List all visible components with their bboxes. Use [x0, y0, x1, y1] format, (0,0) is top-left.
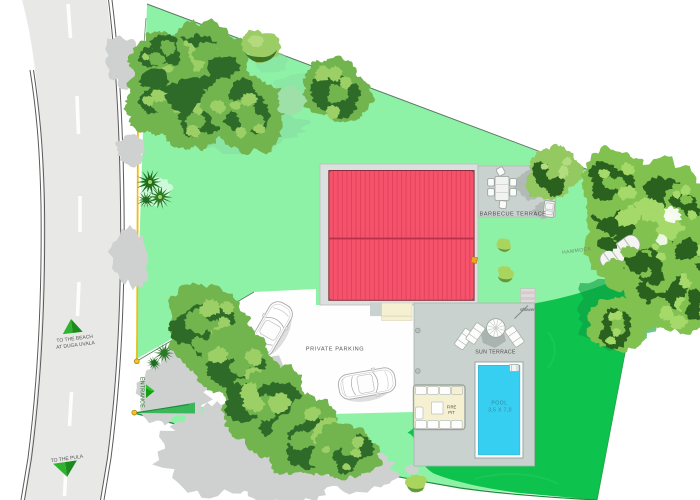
svg-text:POOL: POOL [491, 401, 507, 407]
svg-text:SUN TERRACE: SUN TERRACE [475, 350, 516, 356]
svg-text:3,5 X 7,0: 3,5 X 7,0 [488, 408, 512, 414]
svg-text:FIRE: FIRE [447, 405, 457, 410]
svg-text:PRIVATE PARKING: PRIVATE PARKING [306, 347, 364, 353]
svg-text:PIT: PIT [448, 410, 455, 415]
svg-text:ENTRANCE: ENTRANCE [139, 377, 145, 408]
svg-text:shower: shower [520, 307, 535, 312]
svg-text:BARBECUE TERRACE: BARBECUE TERRACE [480, 212, 547, 218]
